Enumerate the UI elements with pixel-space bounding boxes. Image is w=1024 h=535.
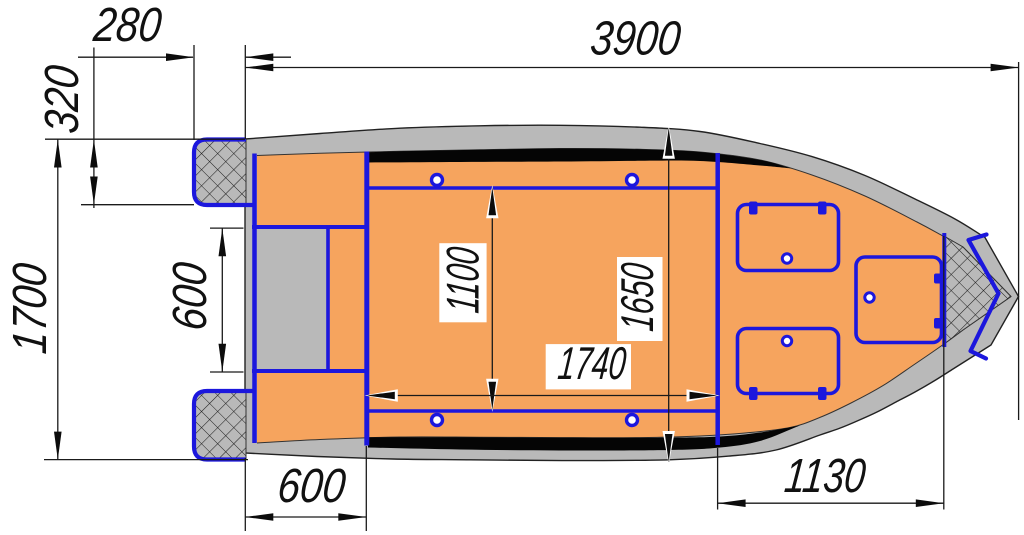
svg-text:1130: 1130: [782, 450, 868, 503]
svg-text:1650: 1650: [613, 260, 664, 333]
svg-text:280: 280: [90, 0, 164, 52]
svg-text:600: 600: [275, 460, 348, 513]
svg-text:1100: 1100: [439, 244, 490, 315]
svg-text:1740: 1740: [556, 339, 629, 390]
svg-text:600: 600: [164, 260, 217, 333]
svg-text:3900: 3900: [588, 12, 683, 65]
svg-text:1700: 1700: [4, 260, 57, 355]
svg-text:320: 320: [36, 63, 89, 136]
